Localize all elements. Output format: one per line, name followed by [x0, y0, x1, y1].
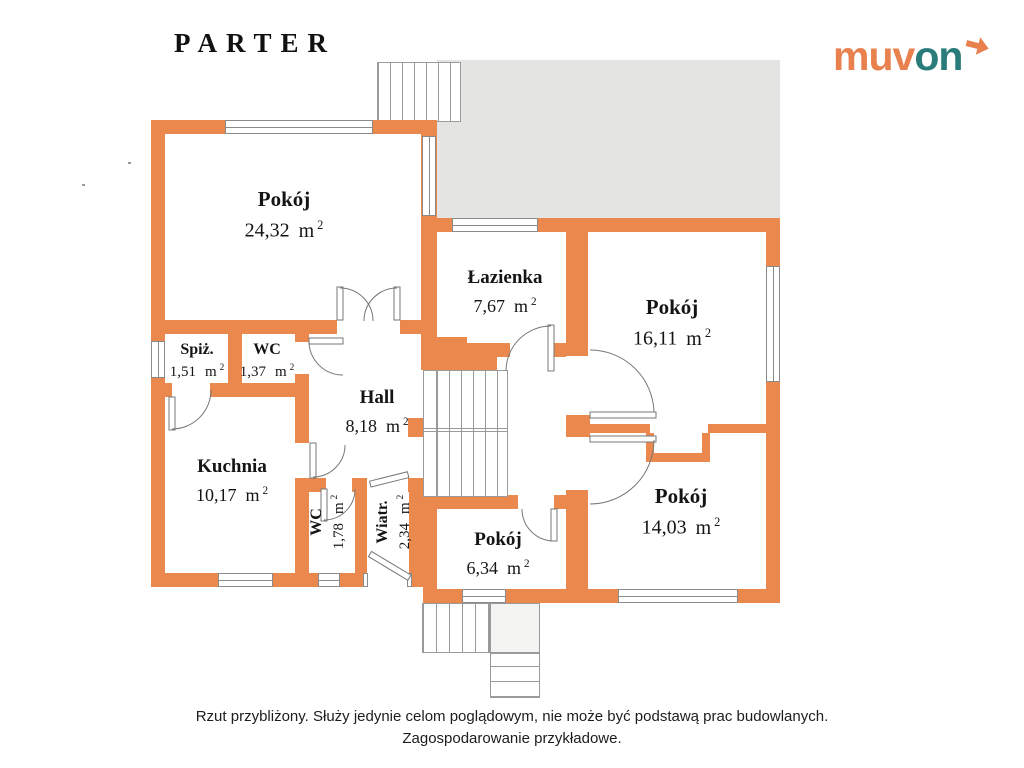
door-leaf [309, 338, 343, 344]
wall-stair-step-block2 [467, 355, 497, 370]
page-title: PARTER [174, 28, 336, 59]
wall-kuchnia-top-seg2 [210, 383, 309, 397]
window-wc2-south [318, 573, 340, 587]
wall-bottom-sw-seg2 [273, 573, 318, 587]
wall-hall-south-seg2 [352, 478, 367, 492]
room-label-kuchnia: Kuchnia 10,17m2 [196, 455, 268, 507]
stairs-bottom-flight2 [490, 653, 540, 698]
room-label-pokoj-1611: Pokój 16,11m2 [633, 294, 711, 352]
wall-hall-south-seg1 [295, 478, 326, 492]
disclaimer-line2: Zagospodarowanie przykładowe. [0, 728, 1024, 750]
window-spiz-west [151, 341, 165, 378]
door-leaf [394, 287, 400, 320]
door-arc [364, 288, 397, 321]
wall-wc-hall-stub-bottom [295, 374, 309, 383]
wall-kuchnia-top-seg1 [151, 383, 172, 397]
door-leaf [551, 509, 557, 541]
room-label-pokoj-2432: Pokój 24,32m2 [245, 186, 324, 244]
wall-room634-east [566, 490, 588, 603]
wall-wc-hall-stub-top [295, 334, 309, 342]
wall-lazienka-south-stub [554, 343, 566, 357]
door-leaf [169, 397, 175, 430]
room-label-wiatrolap: Wiatr. 2,34m2 [373, 495, 415, 550]
wall-se-west [423, 497, 437, 589]
wall-rooms-divider-segB [708, 424, 766, 433]
window-kuchnia-south [218, 573, 273, 587]
door-leaf [337, 287, 343, 320]
stairs-central [436, 370, 508, 497]
wall-hall-stair-pillar [408, 418, 423, 437]
wall-wc2-wiatr-divider [355, 492, 367, 573]
footer-disclaimer: Rzut przybliżony. Służy jedynie celom po… [0, 706, 1024, 750]
wall-corridor-door-block [566, 415, 590, 437]
room-label-pokoj-634: Pokój 6,34m2 [466, 528, 529, 580]
terrace-area [437, 60, 780, 218]
window-room1-east [422, 136, 436, 216]
wall-lazienka-south [437, 343, 510, 357]
door-arc [590, 350, 654, 412]
stairs-central-landing-line [423, 428, 508, 432]
door-leaf [310, 443, 316, 478]
stairs-bottom-flight [422, 603, 490, 653]
wall-bottom-se-seg3 [738, 589, 780, 603]
arrow-right-icon [963, 32, 994, 60]
stairs-bottom-landing [490, 603, 540, 653]
window-room2-east [766, 266, 780, 382]
door-arc [309, 341, 343, 375]
door-arc [340, 288, 373, 321]
room-label-pokoj-1403: Pokój 14,03m2 [642, 483, 721, 541]
room-label-wc-137: WC 1,37m2 [240, 340, 295, 382]
wall-room634-north [423, 495, 518, 509]
wall-hall-south-seg3 [408, 478, 423, 492]
room-label-spiz: Spiż. 1,51m2 [170, 340, 225, 382]
window-room1403-south [618, 589, 738, 603]
wall-lazienka-west [421, 232, 437, 337]
door-arc [506, 326, 551, 371]
room-label-wc-178: WC 1,78m2 [307, 495, 349, 550]
wall-niche-leg-right [702, 433, 710, 455]
wall-niche-bottom [646, 453, 710, 462]
wall-room1-bottom-left [151, 320, 337, 334]
door-leaf [370, 472, 409, 487]
door-leaf [590, 412, 656, 418]
stairs-central-balustrade [423, 370, 437, 497]
wall-room634-north-stub [554, 495, 566, 509]
entrance-door-jamb-left [363, 573, 368, 587]
window-room634-south [462, 589, 506, 603]
door-arc [313, 445, 345, 477]
wall-lazienka-east [566, 232, 588, 356]
wall-bottom-se-seg2 [506, 589, 618, 603]
logo-text-muv: muv [833, 33, 914, 80]
logo: muv on [833, 33, 991, 80]
entrance-door-jamb-right [407, 573, 412, 587]
logo-text-on: on [914, 33, 962, 80]
room-label-lazienka: Łazienka 7,67m2 [468, 266, 543, 318]
room-label-hall: Hall 8,18m2 [345, 386, 408, 438]
door-leaf [368, 551, 411, 580]
window-room1-north [225, 120, 373, 134]
wall-rooms-divider-segA [588, 424, 650, 433]
wall-bottom-sw-seg1 [151, 573, 218, 587]
door-arc [172, 390, 211, 429]
floor-plan-page: PARTER muv on [0, 0, 1024, 768]
speck [128, 162, 131, 164]
disclaimer-line1: Rzut przybliżony. Służy jedynie celom po… [0, 706, 1024, 728]
window-lazienka-north [452, 218, 538, 232]
wall-kuchnia-hall-divider [295, 397, 309, 443]
wall-bottom-se-seg1 [423, 589, 462, 603]
wall-niche-leg-left [646, 433, 654, 455]
stairs-top-exterior [377, 62, 461, 122]
speck [82, 184, 85, 186]
